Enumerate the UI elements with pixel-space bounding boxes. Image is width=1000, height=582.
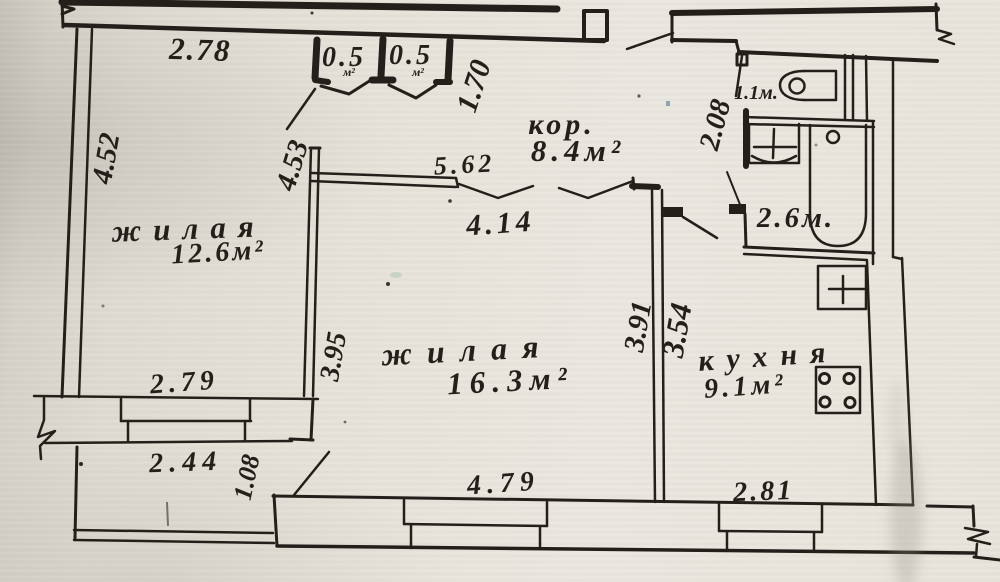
- svg-text:3.95: 3.95: [314, 330, 353, 385]
- svg-text:1.1м.: 1.1м.: [734, 82, 778, 104]
- svg-text:м²: м²: [411, 65, 424, 79]
- svg-text:2.79: 2.79: [148, 365, 220, 401]
- svg-text:4.14: 4.14: [464, 205, 536, 243]
- svg-text:2.08: 2.08: [693, 96, 737, 155]
- svg-text:м²: м²: [342, 65, 355, 79]
- svg-text:1.70: 1.70: [450, 56, 498, 116]
- svg-text:2.44: 2.44: [148, 446, 223, 480]
- svg-text:4.53: 4.53: [269, 136, 315, 195]
- svg-text:3.54: 3.54: [655, 300, 699, 360]
- svg-text:2.81: 2.81: [732, 475, 795, 508]
- svg-text:3.91: 3.91: [618, 299, 659, 356]
- svg-text:2.78: 2.78: [168, 31, 232, 68]
- svg-text:16.3м²: 16.3м²: [446, 360, 574, 402]
- svg-text:2.6м.: 2.6м.: [756, 202, 835, 234]
- svg-text:8.4м²: 8.4м²: [531, 133, 625, 168]
- svg-text:12.6м²: 12.6м²: [171, 235, 267, 271]
- svg-text:4.52: 4.52: [86, 131, 127, 188]
- svg-text:5.62: 5.62: [433, 148, 496, 180]
- svg-text:9.1м²: 9.1м²: [703, 368, 788, 405]
- svg-text:4.79: 4.79: [465, 466, 541, 502]
- svg-text:0.5: 0.5: [389, 40, 433, 71]
- svg-text:1.08: 1.08: [228, 452, 266, 503]
